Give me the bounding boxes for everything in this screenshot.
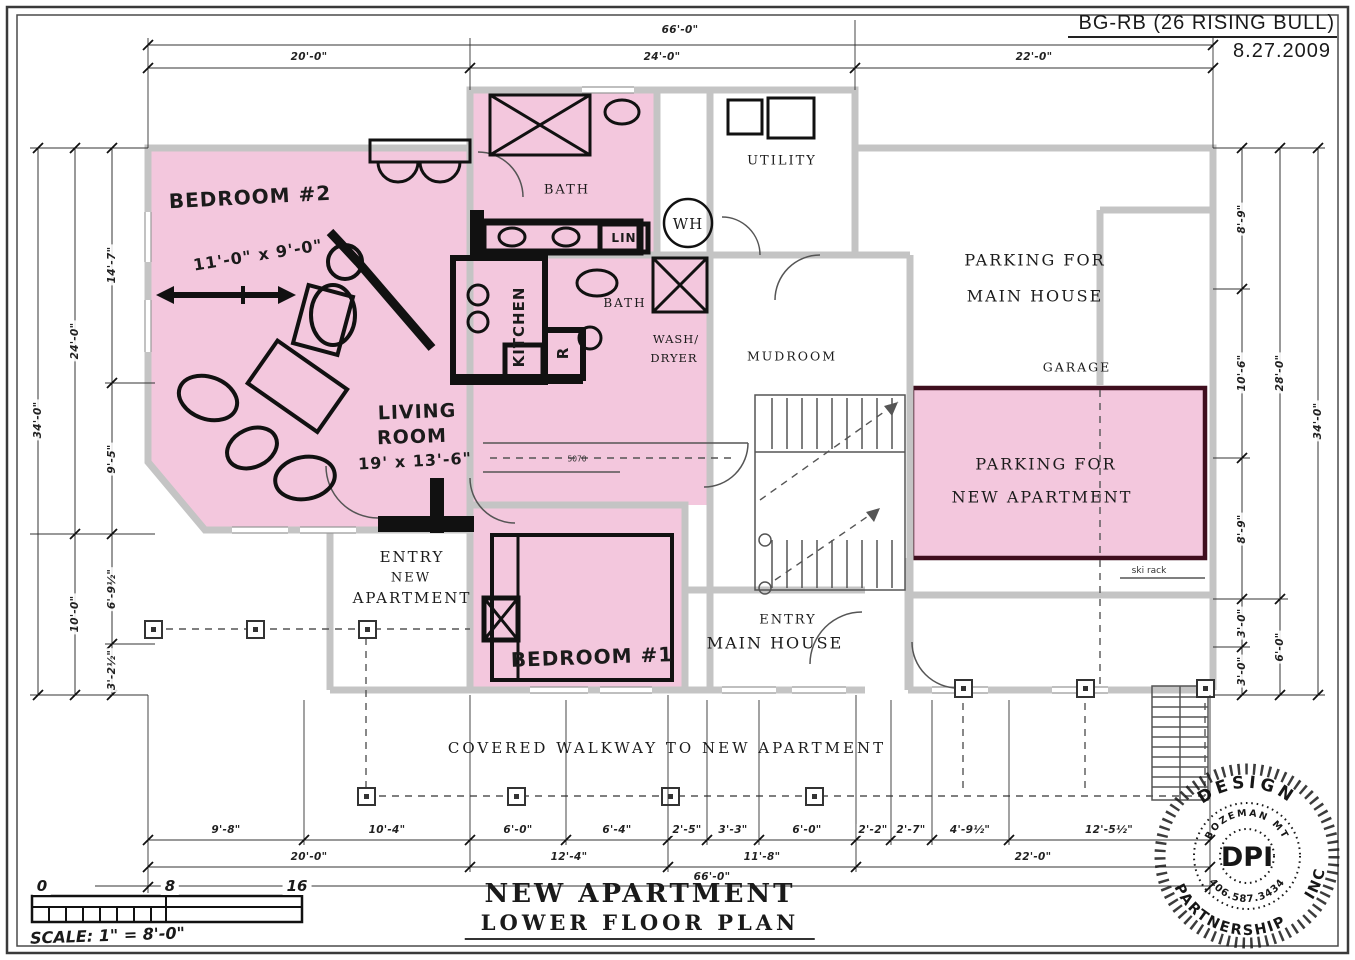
dim-right-total: 34'-0" — [1312, 401, 1324, 442]
label-bath-upper: BATH — [544, 183, 590, 198]
dim-bot1-7: 6'-0" — [790, 824, 823, 836]
dim-right-mid-1: 28'-0" — [1274, 353, 1286, 394]
stamp-dpi-text: DPI — [1221, 842, 1273, 873]
label-window-tag: 5070 — [567, 455, 586, 464]
dim-bot1-4: 6'-4" — [600, 824, 633, 836]
project-title: BG-RB (26 RISING BULL) — [1068, 12, 1337, 38]
dim-bot1-10: 4'-9½" — [948, 824, 992, 836]
label-utility: UTILITY — [747, 154, 817, 169]
dim-right-inner-1: 8'-9" — [1236, 202, 1248, 235]
scale-bar — [32, 896, 302, 922]
dim-bot1-5: 2'-5" — [670, 824, 703, 836]
label-entry-new-2: NEW — [391, 571, 431, 586]
dim-right-inner-2: 10'-6" — [1236, 353, 1248, 394]
dim-bot2-3: 11'-8" — [742, 851, 783, 863]
svg-text:INC: INC — [1302, 866, 1329, 903]
sheet-title-line2: LOWER FLOOR PLAN — [465, 910, 815, 940]
dim-right-inner-4: 3'-0" — [1236, 606, 1248, 639]
sheet-title-line1: NEW APARTMENT — [484, 879, 795, 909]
label-water-heater: WH — [673, 215, 704, 233]
dim-bot1-11: 12'-5½" — [1083, 824, 1135, 836]
dim-left-inner-3: 6'-9½" — [106, 567, 118, 611]
dim-bot1-8: 2'-2" — [856, 824, 889, 836]
stamp-inc-text: INC — [1302, 866, 1329, 903]
label-wash-1: WASH/ — [653, 332, 699, 346]
svg-text:406.587.3434: 406.587.3434 — [1207, 877, 1288, 905]
label-covered-walkway: COVERED WALKWAY TO NEW APARTMENT — [448, 739, 886, 757]
scale-tick-8: 8 — [161, 877, 179, 895]
dim-top-1: 20'-0" — [289, 51, 330, 63]
dim-bot2-4: 22'-0" — [1013, 851, 1054, 863]
dim-bot1-6: 3'-3" — [716, 824, 749, 836]
dim-left-mid-2: 10'-0" — [69, 594, 81, 635]
dim-bot1-1: 9'-8" — [209, 824, 242, 836]
stamp-phone-text: 406.587.3434 — [1207, 877, 1288, 905]
dim-left-mid-1: 24'-0" — [69, 321, 81, 362]
label-garage: GARAGE — [1043, 360, 1112, 375]
dim-right-inner-3: 8'-9" — [1236, 512, 1248, 545]
label-ski-rack: ski rack — [1132, 566, 1167, 576]
label-parking-new-2: NEW APARTMENT — [952, 488, 1133, 507]
dim-top-2: 24'-0" — [642, 51, 683, 63]
label-living-2: ROOM — [377, 425, 448, 449]
dim-bot2-1: 20'-0" — [289, 851, 330, 863]
label-entry-new-3: APARTMENT — [353, 589, 472, 607]
label-entry-new-1: ENTRY — [380, 548, 445, 566]
label-bath-lower: BATH — [603, 296, 646, 310]
label-fridge: R — [554, 347, 572, 360]
label-kitchen: KITCHEN — [510, 287, 528, 368]
dim-bot2-2: 12'-4" — [549, 851, 590, 863]
label-parking-new-1: PARKING FOR — [975, 455, 1116, 474]
dim-left-total: 34'-0" — [32, 400, 44, 441]
label-wash-2: DRYER — [650, 351, 697, 365]
dim-right-mid-2: 6'-0" — [1274, 630, 1286, 663]
dim-top-total: 66'-0" — [660, 24, 701, 36]
dim-left-inner-1: 14'-7" — [106, 245, 118, 286]
label-entry-main-1: ENTRY — [759, 613, 817, 628]
label-entry-main-2: MAIN HOUSE — [707, 634, 844, 653]
label-parking-main-1: PARKING FOR — [964, 251, 1105, 270]
scale-tick-0: 0 — [33, 877, 51, 895]
floor-plan-drawing: DESIGN PARTNERSHIP INC BOZEMAN MT 406.58… — [0, 0, 1355, 960]
label-parking-main-2: MAIN HOUSE — [967, 287, 1104, 306]
dim-top-3: 22'-0" — [1014, 51, 1055, 63]
label-living-1: LIVING — [377, 400, 456, 425]
drawing-date: 8.27.2009 — [1233, 40, 1331, 63]
dim-bot1-9: 2'-7" — [894, 824, 927, 836]
floor-plan-page: DESIGN PARTNERSHIP INC BOZEMAN MT 406.58… — [0, 0, 1355, 960]
dim-bot1-2: 10'-4" — [367, 824, 408, 836]
dim-left-inner-4: 3'-2½" — [106, 648, 118, 692]
label-linen: LIN — [611, 231, 636, 245]
dim-left-inner-2: 9'-5" — [106, 442, 118, 475]
dim-bot1-3: 6'-0" — [501, 824, 534, 836]
dpi-stamp: DESIGN PARTNERSHIP INC BOZEMAN MT 406.58… — [1160, 769, 1334, 943]
scale-tick-16: 16 — [283, 877, 312, 895]
dim-right-inner-5: 3'-0" — [1236, 654, 1248, 687]
label-mudroom: MUDROOM — [747, 349, 837, 364]
